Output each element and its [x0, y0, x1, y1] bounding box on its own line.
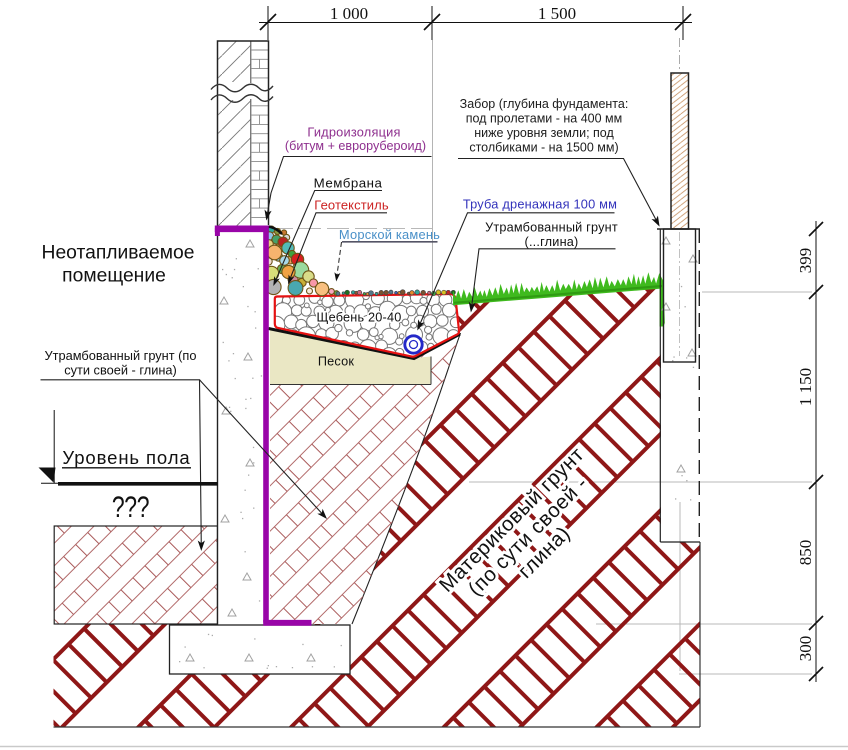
svg-text:(...глина): (...глина) — [525, 235, 579, 249]
svg-text:столбиками - на 1500 мм): столбиками - на 1500 мм) — [469, 141, 618, 155]
svg-text:300: 300 — [796, 636, 815, 662]
svg-text:399: 399 — [796, 248, 815, 274]
svg-text:(битум + еврорубероид): (битум + еврорубероид) — [285, 139, 426, 153]
svg-text:Щебень 20-40: Щебень 20-40 — [317, 311, 402, 325]
svg-text:1 000: 1 000 — [330, 4, 368, 23]
svg-text:Мембрана: Мембрана — [314, 176, 383, 191]
svg-text:Забор (глубина фундамента:: Забор (глубина фундамента: — [460, 97, 629, 111]
svg-text:Геотекстиль: Геотекстиль — [314, 198, 389, 213]
svg-text:Гидроизоляция: Гидроизоляция — [307, 125, 400, 140]
svg-text:Уровень пола: Уровень пола — [62, 447, 190, 468]
svg-text:Песок: Песок — [318, 355, 355, 369]
svg-text:1 500: 1 500 — [538, 4, 576, 23]
svg-text:под пролетами - на 400 мм: под пролетами - на 400 мм — [466, 112, 623, 126]
svg-text:Неотапливаемое: Неотапливаемое — [42, 243, 195, 264]
svg-text:Труба дренажная 100 мм: Труба дренажная 100 мм — [463, 197, 617, 212]
svg-text:Морской камень: Морской камень — [339, 227, 440, 242]
svg-text:ниже уровня земли; под: ниже уровня земли; под — [474, 126, 614, 140]
svg-text:850: 850 — [796, 540, 815, 566]
svg-text:помещение: помещение — [62, 266, 166, 287]
svg-text:Утрамбованный грунт: Утрамбованный грунт — [485, 221, 618, 235]
svg-text:1 150: 1 150 — [796, 368, 815, 406]
svg-text:сути своей - глина): сути своей - глина) — [64, 363, 177, 378]
svg-text:???: ??? — [112, 490, 149, 523]
svg-text:Утрамбованный грунт (по: Утрамбованный грунт (по — [45, 348, 197, 363]
